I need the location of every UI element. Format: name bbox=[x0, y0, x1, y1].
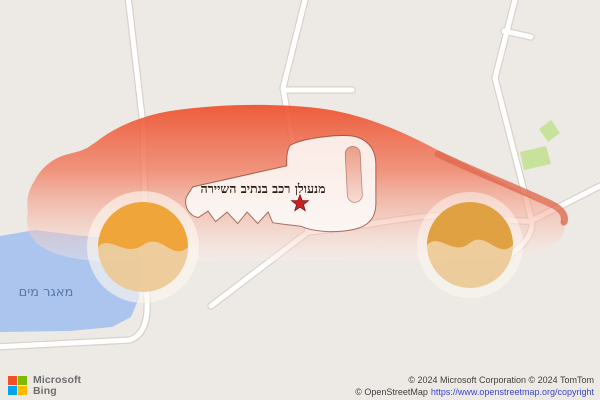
rear-wheel bbox=[427, 202, 513, 288]
osm-copyright-link[interactable]: https://www.openstreetmap.org/copyright bbox=[431, 387, 594, 397]
map-viewport[interactable]: מאגר מים מנעולן רכב בנתיב השי bbox=[0, 0, 600, 400]
ms-square-green bbox=[18, 376, 27, 385]
ms-square-blue bbox=[8, 386, 17, 395]
keyhole-slot bbox=[345, 146, 363, 203]
microsoft-logo-icon bbox=[8, 375, 27, 395]
business-label: מנעולן רכב בנתיב השיירה bbox=[200, 181, 325, 196]
water-label: מאגר מים bbox=[19, 285, 74, 300]
copyright-line2: © OpenStreetMaphttps://www.openstreetmap… bbox=[355, 387, 594, 399]
osm-attribution-text: © OpenStreetMap bbox=[355, 387, 428, 397]
ms-square-yellow bbox=[18, 386, 27, 395]
front-wheel bbox=[98, 202, 188, 292]
ms-square-red bbox=[8, 376, 17, 385]
copyright-line1: © 2024 Microsoft Corporation © 2024 TomT… bbox=[355, 375, 594, 387]
bing-logo[interactable]: Microsoft Bing bbox=[8, 375, 81, 397]
map-canvas: מאגר מים מנעולן רכב בנתיב השי bbox=[0, 0, 600, 400]
bing-wordmark: Bing bbox=[33, 386, 81, 397]
map-copyright: © 2024 Microsoft Corporation © 2024 TomT… bbox=[355, 375, 594, 398]
